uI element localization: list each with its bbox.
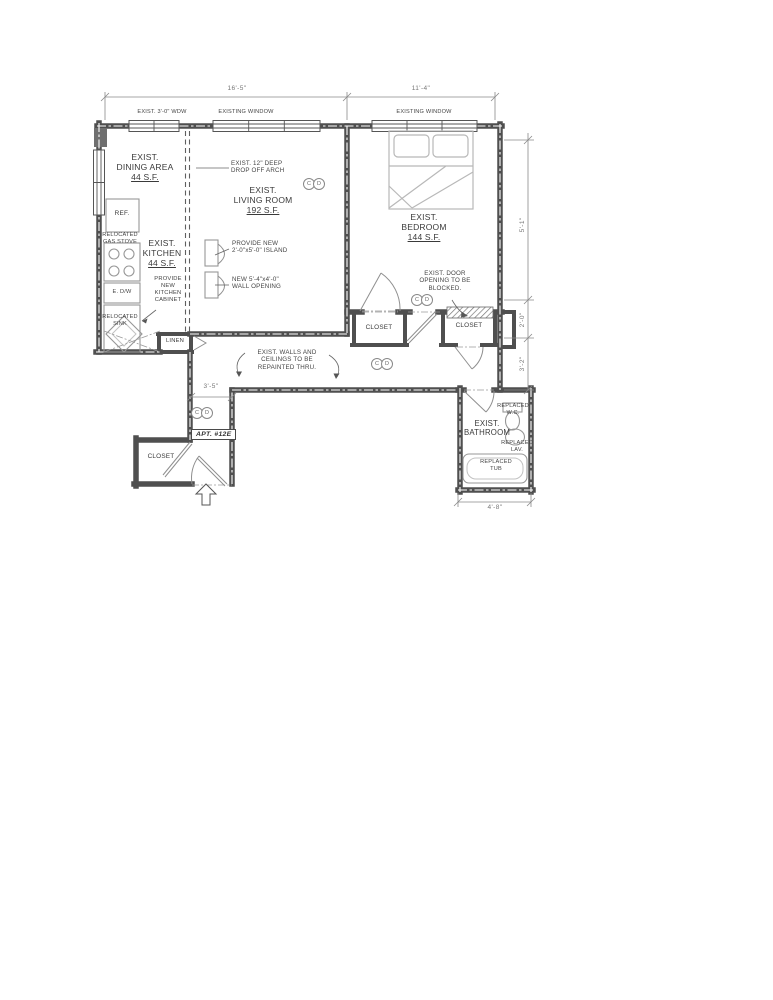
dim-right-lower: 3'-2" <box>519 344 527 384</box>
refrigerator-label: REF. <box>106 210 138 218</box>
window-top-1 <box>129 121 179 132</box>
bed-icon <box>389 131 473 209</box>
note-line: KITCHEN <box>148 290 188 297</box>
wall-opening-note: NEW 5'-4"x4'-0" WALL OPENING <box>232 276 314 291</box>
entry-door <box>191 456 227 486</box>
closet-label-left: CLOSET <box>354 324 404 332</box>
room-line: KITCHEN <box>127 248 197 258</box>
bathroom-door <box>464 391 494 412</box>
room-line: BATHROOM <box>452 428 522 437</box>
note-line: CEILINGS TO BE <box>244 356 330 363</box>
window-top-3 <box>372 121 477 132</box>
island-cabinet-icon <box>205 240 225 298</box>
detector-d: D <box>313 178 325 190</box>
blocked-door-note: EXIST. DOOR OPENING TO BE BLOCKED. <box>408 270 482 292</box>
wc-note: REPLACED W.C. <box>494 403 532 416</box>
note-line: RELOCATED <box>97 314 143 321</box>
note-line: PROVIDE NEW <box>232 240 314 247</box>
bathroom-room-label: EXIST. BATHROOM <box>452 419 522 438</box>
room-line: EXIST. <box>105 152 185 162</box>
smoke-co-detector-icon: C D <box>191 407 213 419</box>
closet-label-entry: CLOSET <box>136 453 186 461</box>
note-line: OPENING TO BE <box>408 277 482 284</box>
apartment-tag: APT. #12E <box>191 429 236 440</box>
wall-pier <box>94 128 107 147</box>
window-label-3: EXISTING WINDOW <box>374 109 474 116</box>
note-line: LAV. <box>498 447 536 454</box>
room-line: EXIST. <box>452 419 522 428</box>
note-line: NEW 5'-4"x4'-0" <box>232 276 314 283</box>
note-line: EXIST. WALLS AND <box>244 349 330 356</box>
note-line: 2'-0"x5'-0" ISLAND <box>232 247 314 254</box>
note-line: REPAINTED THRU. <box>244 364 330 371</box>
room-line: LIVING ROOM <box>213 195 313 205</box>
room-area: 44 S.F. <box>127 258 197 268</box>
room-area: 44 S.F. <box>105 172 185 182</box>
linen-door-wedge <box>194 336 206 350</box>
bedroom-room-label: EXIST. BEDROOM 144 S.F. <box>374 212 474 243</box>
dining-room-label: EXIST. DINING AREA 44 S.F. <box>105 152 185 183</box>
dim-bath-width: 4'-8" <box>470 504 520 512</box>
window-label-2: EXISTING WINDOW <box>196 109 296 116</box>
doors-group <box>163 273 494 486</box>
note-line: DROP OFF ARCH <box>231 167 307 174</box>
floor-plan-drawing <box>0 0 773 1000</box>
room-line: DINING AREA <box>105 162 185 172</box>
note-line: CABINET <box>148 297 188 304</box>
window-left <box>94 150 105 215</box>
gas-stove-note: RELOCATED GAS STOVE <box>97 232 143 245</box>
window-top-2 <box>213 121 320 132</box>
smoke-co-detector-icon: C D <box>303 178 325 190</box>
closet-door-right <box>455 347 483 369</box>
entry-arrow <box>196 484 216 505</box>
dim-top-right: 11'-4" <box>381 85 461 93</box>
lav-note: REPLACED LAV. <box>498 440 536 453</box>
closet-door-left <box>360 273 400 311</box>
floor-plan-page: EXIST. 3'-0" WDW EXISTING WINDOW EXISTIN… <box>0 0 773 1000</box>
bedroom-passage-door <box>407 312 437 343</box>
detector-d: D <box>421 294 433 306</box>
window-label-1: EXIST. 3'-0" WDW <box>117 109 207 116</box>
dim-top-left: 16'-5" <box>197 85 277 93</box>
sink-note: RELOCATED SINK <box>97 314 143 327</box>
note-line: RELOCATED <box>97 232 143 239</box>
room-line: BEDROOM <box>374 222 474 232</box>
note-line: REPLACED <box>476 459 516 466</box>
room-area: 144 S.F. <box>374 232 474 242</box>
dishwasher-label: E. D/W <box>105 289 139 296</box>
linen-label: LINEN <box>157 338 193 345</box>
tub-note: REPLACED TUB <box>476 459 516 472</box>
kitchen-cabinet-note: PROVIDE NEW KITCHEN CABINET <box>148 276 188 304</box>
note-line: SINK <box>97 321 143 328</box>
dim-right-upper: 5'-1" <box>519 205 527 245</box>
note-line: PROVIDE <box>148 276 188 283</box>
detector-d: D <box>381 358 393 370</box>
room-line: EXIST. <box>374 212 474 222</box>
room-area: 192 S.F. <box>213 205 313 215</box>
note-line: REPLACED <box>498 440 536 447</box>
room-line: EXIST. <box>213 185 313 195</box>
repaint-note: EXIST. WALLS AND CEILINGS TO BE REPAINTE… <box>244 349 330 371</box>
dim-right-mid: 2'-0" <box>519 300 527 340</box>
detector-d: D <box>201 407 213 419</box>
note-line: EXIST. DOOR <box>408 270 482 277</box>
note-line: BLOCKED. <box>408 285 482 292</box>
drop-arch-note: EXIST. 12" DEEP DROP OFF ARCH <box>231 160 307 175</box>
living-room-label: EXIST. LIVING ROOM 192 S.F. <box>213 185 313 216</box>
note-line: NEW <box>148 283 188 290</box>
smoke-co-detector-icon: C D <box>411 294 433 306</box>
hatch-blocked-opening <box>447 307 493 318</box>
note-line: WALL OPENING <box>232 283 314 290</box>
smoke-co-detector-icon: C D <box>371 358 393 370</box>
note-line: W.C. <box>494 410 532 417</box>
note-line: GAS STOVE <box>97 239 143 246</box>
island-note: PROVIDE NEW 2'-0"x5'-0" ISLAND <box>232 240 314 255</box>
note-line: EXIST. 12" DEEP <box>231 160 307 167</box>
dim-hall-width: 3'-5" <box>188 383 234 391</box>
note-line: REPLACED <box>494 403 532 410</box>
note-line: TUB <box>476 466 516 473</box>
closet-label-right: CLOSET <box>444 322 494 330</box>
